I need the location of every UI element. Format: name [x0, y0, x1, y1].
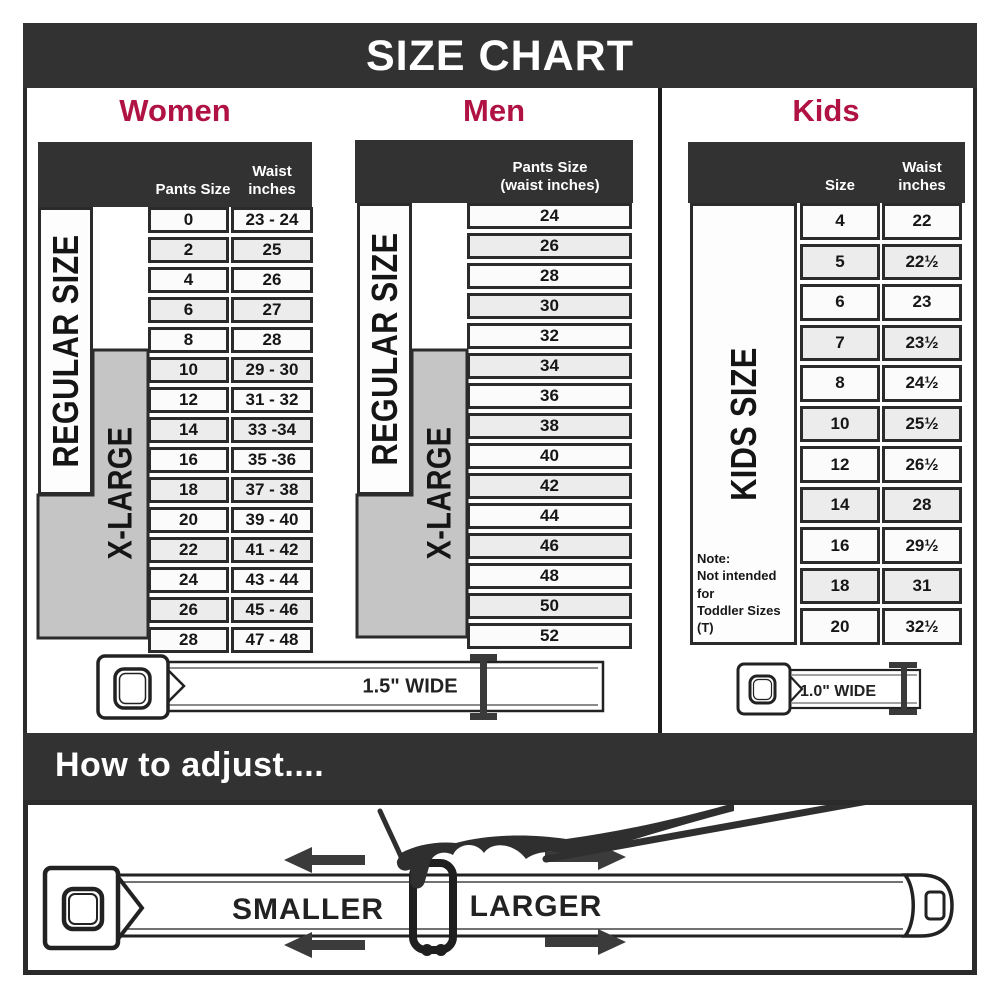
women-waist-column: 23 - 242526272829 - 3031 - 3233 -3435 -3… [231, 207, 313, 638]
table-cell: 28 [467, 263, 632, 289]
adjust-bar: How to adjust.... [23, 733, 977, 800]
table-cell: 8 [800, 365, 880, 402]
table-cell: 28 [231, 327, 313, 353]
kids-note: Note: Not intended for Toddler Sizes (T) [697, 550, 797, 636]
table-cell: 36 [467, 383, 632, 409]
women-regular-size-label: REGULAR SIZE [45, 235, 87, 468]
kids-belt-illustration: 1.0" WIDE [735, 651, 947, 721]
kids-size-column: 45678101214161820 [800, 203, 880, 645]
table-cell: 48 [467, 563, 632, 589]
page-title: SIZE CHART [366, 32, 634, 80]
smaller-arrow-top-icon [284, 847, 365, 873]
table-cell: 24 [148, 567, 229, 593]
kids-table-header: Size Waist inches [688, 142, 965, 203]
women-regular-size-box: REGULAR SIZE [38, 207, 93, 495]
table-cell: 45 - 46 [231, 597, 313, 623]
table-cell: 47 - 48 [231, 627, 313, 653]
table-cell: 29½ [882, 527, 962, 564]
table-cell: 26½ [882, 446, 962, 483]
men-regular-size-box: REGULAR SIZE [357, 203, 412, 495]
table-cell: 10 [800, 406, 880, 443]
table-cell: 7 [800, 325, 880, 362]
size-chart-graphic: SIZE CHART Women Men Kids Pants Size Wai… [0, 0, 1000, 1000]
table-cell: 6 [148, 297, 229, 323]
table-cell: 37 - 38 [231, 477, 313, 503]
men-regular-size-label: REGULAR SIZE [364, 233, 406, 466]
table-cell: 34 [467, 353, 632, 379]
kids-size-box: KIDS SIZE Note: Not intended for Toddler… [690, 203, 797, 645]
kids-size-label: KIDS SIZE [723, 347, 765, 500]
table-cell: 42 [467, 473, 632, 499]
table-cell: 24 [467, 203, 632, 229]
table-cell: 24½ [882, 365, 962, 402]
content-frame: SIZE CHART Women Men Kids Pants Size Wai… [23, 23, 977, 975]
adjust-heading: How to adjust.... [55, 746, 324, 784]
table-cell: 25 [231, 237, 313, 263]
table-cell: 18 [800, 568, 880, 605]
men-size-column: 242628303234363840424446485052 [467, 203, 632, 637]
table-cell: 44 [467, 503, 632, 529]
women-xlarge-label-zone: X-LARGE [93, 350, 148, 636]
table-cell: 5 [800, 244, 880, 281]
women-pants-size-column: 0246810121416182022242628 [148, 207, 229, 638]
table-cell: 26 [467, 233, 632, 259]
finger-line-icon [380, 811, 402, 859]
kids-col-waist-header: Waist inches [872, 159, 972, 197]
table-cell: 18 [148, 477, 229, 503]
men-kids-divider [658, 88, 662, 733]
table-cell: 16 [148, 447, 229, 473]
table-cell: 35 -36 [231, 447, 313, 473]
table-cell: 41 - 42 [231, 537, 313, 563]
men-table-header: Pants Size (waist inches) [355, 140, 633, 203]
table-cell: 0 [148, 207, 229, 233]
men-xlarge-label: X-LARGE [420, 426, 459, 559]
table-cell: 10 [148, 357, 229, 383]
men-xlarge-label-zone: X-LARGE [412, 350, 467, 635]
men-col-header: Pants Size (waist inches) [469, 159, 631, 197]
table-cell: 39 - 40 [231, 507, 313, 533]
table-cell: 6 [800, 284, 880, 321]
table-cell: 28 [148, 627, 229, 653]
table-cell: 26 [231, 267, 313, 293]
table-cell: 22 [882, 203, 962, 240]
table-cell: 20 [800, 608, 880, 645]
kids-col-size-header: Size [800, 177, 880, 196]
women-heading: Women [60, 93, 290, 129]
adult-belt-width-label: 1.5" WIDE [362, 676, 457, 698]
table-cell: 30 [467, 293, 632, 319]
table-cell: 22½ [882, 244, 962, 281]
table-cell: 4 [148, 267, 229, 293]
table-cell: 50 [467, 593, 632, 619]
men-heading: Men [379, 93, 609, 129]
title-bar: SIZE CHART [23, 23, 977, 88]
table-cell: 32 [467, 323, 632, 349]
how-to-adjust-panel: SMALLER LARGER [23, 800, 977, 975]
kids-heading: Kids [711, 93, 941, 129]
table-cell: 12 [148, 387, 229, 413]
women-xlarge-label: X-LARGE [101, 426, 140, 559]
table-cell: 40 [467, 443, 632, 469]
table-cell: 25½ [882, 406, 962, 443]
table-cell: 46 [467, 533, 632, 559]
table-cell: 12 [800, 446, 880, 483]
table-cell: 28 [882, 487, 962, 524]
table-cell: 31 - 32 [231, 387, 313, 413]
table-cell: 16 [800, 527, 880, 564]
table-cell: 26 [148, 597, 229, 623]
table-cell: 14 [148, 417, 229, 443]
table-cell: 23 - 24 [231, 207, 313, 233]
table-cell: 4 [800, 203, 880, 240]
table-cell: 32½ [882, 608, 962, 645]
adult-belt-illustration: 1.5" WIDE [93, 648, 638, 726]
arm-line-icon [546, 805, 968, 859]
women-table-header: Pants Size Waist inches [38, 142, 312, 207]
kids-waist-column: 2222½2323½24½25½26½2829½3132½ [882, 203, 962, 645]
table-cell: 29 - 30 [231, 357, 313, 383]
table-cell: 23½ [882, 325, 962, 362]
table-cell: 8 [148, 327, 229, 353]
smaller-label: SMALLER [232, 893, 384, 926]
table-cell: 43 - 44 [231, 567, 313, 593]
larger-label: LARGER [470, 890, 603, 923]
adjust-diagram: SMALLER LARGER [28, 805, 972, 970]
size-tables-panel: Women Men Kids Pants Size Waist inches X… [23, 88, 977, 733]
table-cell: 27 [231, 297, 313, 323]
table-cell: 20 [148, 507, 229, 533]
table-cell: 31 [882, 568, 962, 605]
kids-belt-width-label: 1.0" WIDE [800, 683, 876, 700]
panel-border-right [973, 88, 977, 733]
table-cell: 2 [148, 237, 229, 263]
table-cell: 52 [467, 623, 632, 649]
table-cell: 38 [467, 413, 632, 439]
panel-border-left [23, 88, 27, 733]
table-cell: 33 -34 [231, 417, 313, 443]
table-cell: 14 [800, 487, 880, 524]
table-cell: 23 [882, 284, 962, 321]
table-cell: 22 [148, 537, 229, 563]
women-col-waist-header: Waist inches [222, 163, 322, 201]
